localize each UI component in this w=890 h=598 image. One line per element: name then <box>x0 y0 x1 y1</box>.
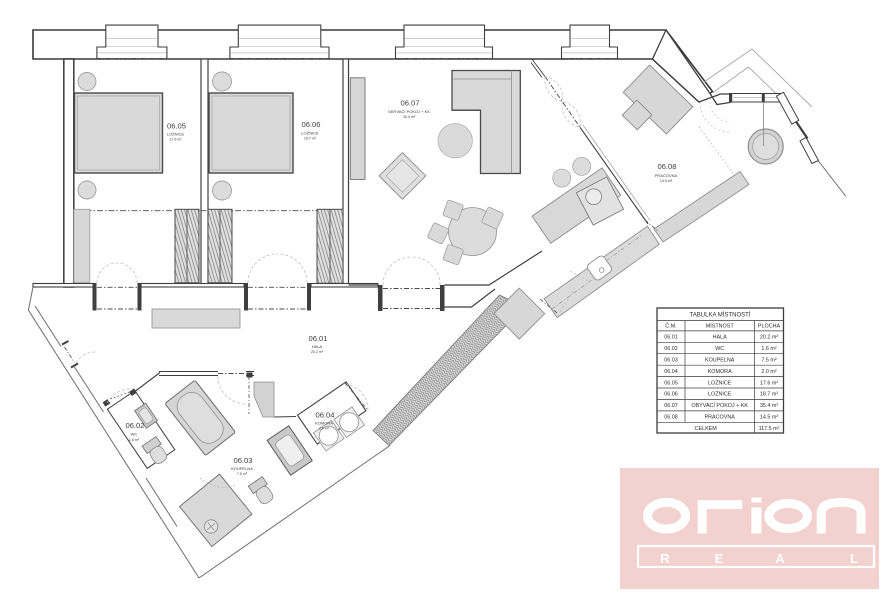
svg-text:7.5 m²: 7.5 m² <box>761 357 776 363</box>
svg-text:06.01: 06.01 <box>308 334 327 343</box>
svg-text:06.05: 06.05 <box>167 122 186 131</box>
svg-text:06.08: 06.08 <box>657 162 676 171</box>
svg-text:18.7 m²: 18.7 m² <box>304 137 317 141</box>
svg-text:KOMORA: KOMORA <box>315 421 333 426</box>
svg-text:PRACOVNA: PRACOVNA <box>655 173 678 178</box>
svg-text:HALA: HALA <box>713 335 727 341</box>
svg-text:LOŽNICE: LOŽNICE <box>301 131 319 136</box>
svg-text:WC: WC <box>131 432 138 437</box>
svg-text:06.07: 06.07 <box>664 403 678 409</box>
svg-text:Č.M.: Č.M. <box>665 323 676 330</box>
svg-text:20.2 m²: 20.2 m² <box>311 350 324 354</box>
svg-text:06.03: 06.03 <box>233 456 252 465</box>
svg-text:117.5 m²: 117.5 m² <box>759 426 780 432</box>
svg-text:06.01: 06.01 <box>664 335 678 341</box>
svg-text:HALA: HALA <box>312 344 323 349</box>
svg-text:KOUPELNA: KOUPELNA <box>705 357 735 363</box>
svg-text:1.6 m²: 1.6 m² <box>129 438 140 442</box>
svg-text:LOŽNICE: LOŽNICE <box>167 132 185 137</box>
svg-text:PRACOVNA: PRACOVNA <box>705 415 736 421</box>
svg-text:17.6 m²: 17.6 m² <box>169 138 182 142</box>
svg-text:06.06: 06.06 <box>301 120 320 129</box>
svg-text:CELKEM: CELKEM <box>695 426 718 432</box>
svg-text:KOUPELNA: KOUPELNA <box>231 466 253 471</box>
svg-text:LOŽNICE: LOŽNICE <box>708 378 732 386</box>
svg-text:LOŽNICE: LOŽNICE <box>708 390 732 398</box>
svg-text:7.5 m²: 7.5 m² <box>237 472 248 476</box>
svg-text:14.5 m²: 14.5 m² <box>760 415 778 421</box>
svg-text:06.04: 06.04 <box>315 411 334 420</box>
svg-text:06.07: 06.07 <box>400 99 419 108</box>
svg-text:06.04: 06.04 <box>664 369 678 375</box>
svg-text:17.6 m²: 17.6 m² <box>760 380 778 386</box>
svg-text:PLOCHA: PLOCHA <box>758 324 781 330</box>
svg-text:A: A <box>775 551 785 566</box>
svg-text:35.4 m²: 35.4 m² <box>403 115 416 119</box>
svg-text:1.6 m²: 1.6 m² <box>761 346 776 352</box>
svg-text:WC: WC <box>715 346 724 352</box>
svg-text:06.02: 06.02 <box>125 421 144 430</box>
svg-text:TABULKA MÍSTNOSTÍ: TABULKA MÍSTNOSTÍ <box>690 312 751 319</box>
svg-text:2.0 m²: 2.0 m² <box>319 427 330 431</box>
svg-text:2.0 m²: 2.0 m² <box>761 369 776 375</box>
svg-text:06.08: 06.08 <box>664 415 678 421</box>
svg-text:KOMORA: KOMORA <box>708 369 732 375</box>
svg-text:MÍSTNOST: MÍSTNOST <box>706 323 735 330</box>
svg-text:06.05: 06.05 <box>664 380 678 386</box>
svg-text:20.2 m²: 20.2 m² <box>760 335 778 341</box>
svg-text:E: E <box>715 551 724 566</box>
svg-text:35.4 m²: 35.4 m² <box>760 403 778 409</box>
svg-text:06.06: 06.06 <box>664 392 678 398</box>
svg-text:18.7 m²: 18.7 m² <box>760 392 778 398</box>
svg-text:R: R <box>660 551 670 566</box>
svg-text:06.03: 06.03 <box>664 357 678 363</box>
svg-text:OBÝVACÍ POKOJ + KK: OBÝVACÍ POKOJ + KK <box>691 402 748 409</box>
svg-text:L: L <box>850 551 858 566</box>
svg-text:OBÝVACÍ POKOJ + KK: OBÝVACÍ POKOJ + KK <box>388 109 430 114</box>
svg-text:14.5 m²: 14.5 m² <box>660 179 673 183</box>
svg-text:06.02: 06.02 <box>664 346 678 352</box>
